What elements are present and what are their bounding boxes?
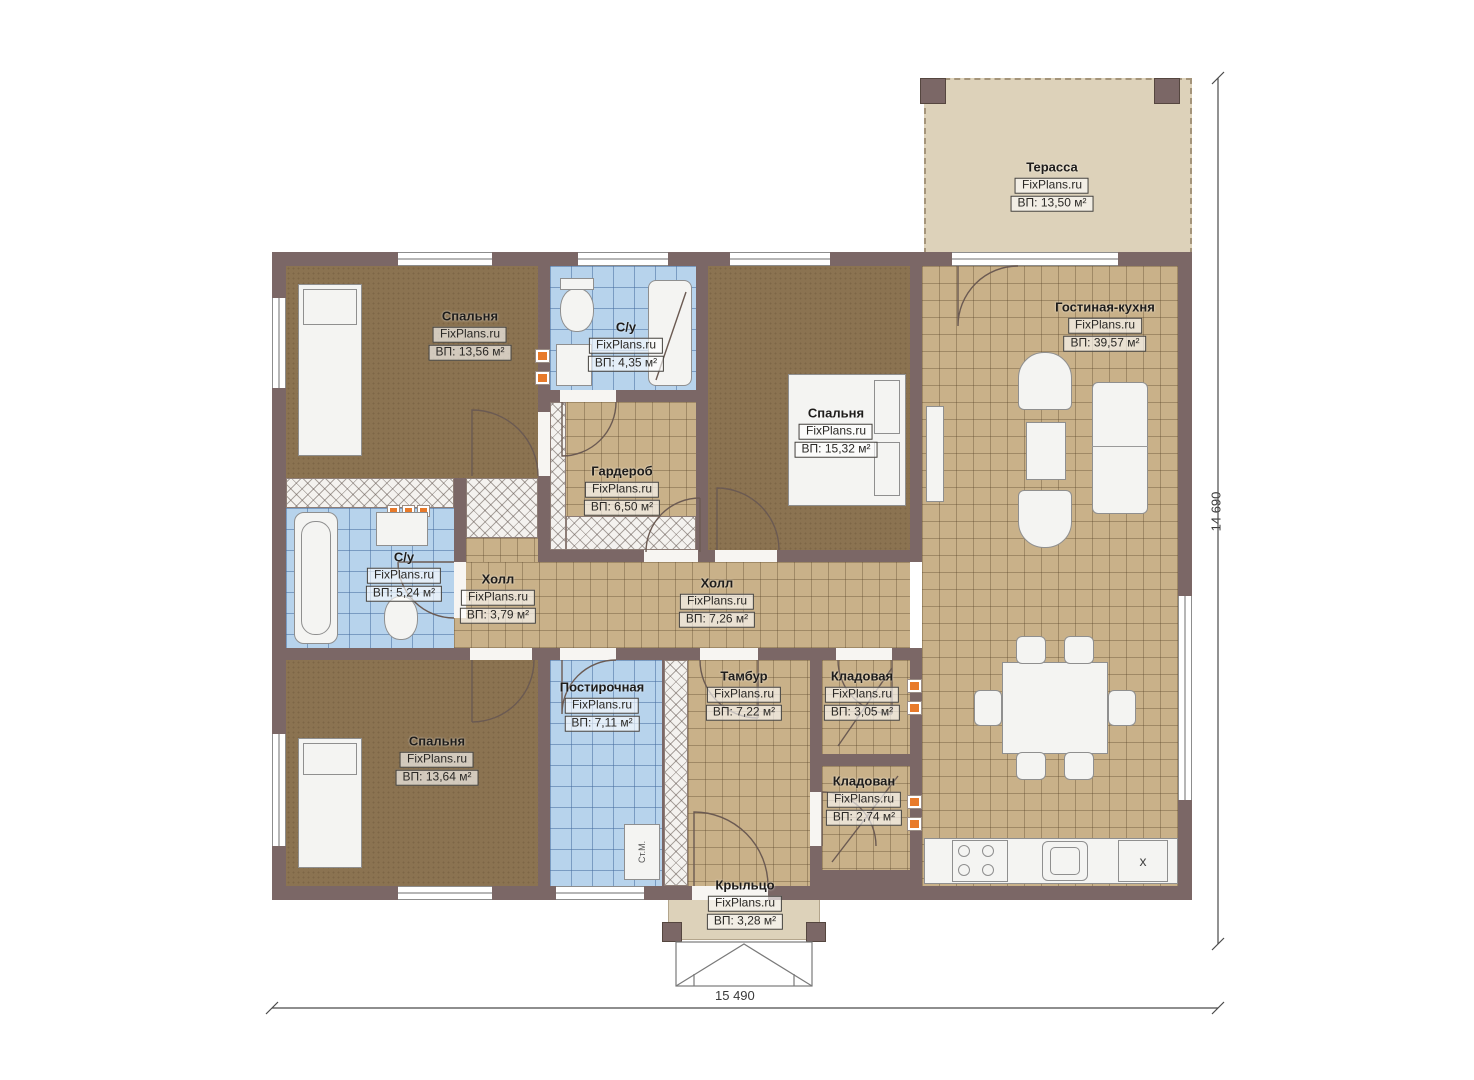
room-area: ВП: 7,22 м² [706,704,782,720]
window-bottom-bedroom-bl [398,886,492,900]
window-right-living [1178,596,1192,800]
terrace-post-left [920,78,946,104]
room-label-bath-left: С/у FixPlans.ru ВП: 5,24 м² [366,551,442,602]
room-name: Спальня [409,735,465,750]
dimension-bottom: 15 490 [715,988,755,1003]
burner-1 [958,845,970,857]
door-gap-bedroom-r [715,550,777,562]
window-top-bedroom-tl [398,252,492,266]
room-label-hall-small: Холл FixPlans.ru ВП: 3,79 м² [460,573,536,624]
room-name: Спальня [442,310,498,325]
dimension-right: 14 690 [1208,492,1223,532]
pillow-bedroom-r [874,380,900,434]
armchair-top [1018,352,1072,410]
watermark: FixPlans.ru [589,338,663,354]
wall-storage-bottom [822,870,910,886]
room-name: Холл [482,573,515,588]
room-label-vestibule: Тамбур FixPlans.ru ВП: 7,22 м² [706,670,782,721]
room-label-terrace: Терасса FixPlans.ru ВП: 13,50 м² [1011,161,1094,212]
room-area: ВП: 2,74 м² [826,809,902,825]
watermark: FixPlans.ru [433,327,507,343]
room-area: ВП: 13,56 м² [429,344,512,360]
watermark: FixPlans.ru [799,424,873,440]
burner-2 [982,845,994,857]
watermark: FixPlans.ru [585,482,659,498]
door-gap-wardrobe [644,550,698,562]
watermark: FixPlans.ru [1068,318,1142,334]
window-bottom-laundry [556,886,644,900]
room-name: Терасса [1026,161,1078,176]
watermark: FixPlans.ru [565,698,639,714]
room-label-wardrobe: Гардероб FixPlans.ru ВП: 6,50 м² [584,465,660,516]
room-label-storage-1: Кладовая FixPlans.ru ВП: 3,05 м² [824,670,900,721]
pillow-bedroom-tl [303,289,357,325]
watermark: FixPlans.ru [708,896,782,912]
tv-console [926,406,944,502]
sofa-arm-line [1092,446,1148,447]
closet-wardrobe-left [550,402,566,550]
room-name: Кладовая [831,670,893,685]
room-area: ВП: 13,50 м² [1011,195,1094,211]
room-area: ВП: 3,28 м² [707,913,783,929]
pillow-bedroom-bl [303,743,357,775]
room-label-bedroom-bl: Спальня FixPlans.ru ВП: 13,64 м² [396,735,479,786]
dining-chair-l [974,690,1002,726]
vent-3a [908,796,921,808]
watermark: FixPlans.ru [825,687,899,703]
bathtub-inner-bath-left [301,521,331,635]
room-area: ВП: 13,64 м² [396,769,479,785]
armchair-bottom [1018,490,1072,548]
dining-chair-t2 [1064,636,1094,664]
dining-chair-b1 [1016,752,1046,780]
room-name: Спальня [808,407,864,422]
room-area: ВП: 6,50 м² [584,499,660,515]
room-area: ВП: 3,79 м² [460,607,536,623]
room-area: ВП: 7,11 м² [564,715,639,731]
room-area: ВП: 39,57 м² [1064,335,1147,351]
wall-f [810,660,822,886]
pillow-bedroom-r2 [874,442,900,496]
room-name: Холл [701,577,734,592]
room-label-bedroom-r: Спальня FixPlans.ru ВП: 15,32 м² [795,407,878,458]
room-area: ВП: 3,05 м² [824,704,900,720]
dining-chair-b2 [1064,752,1094,780]
burner-3 [958,864,970,876]
door-gap-storage-2 [810,792,822,846]
vent-1a [536,350,549,362]
room-name: С/у [394,551,414,566]
coffee-table [1026,422,1066,480]
sofa [1092,382,1148,514]
room-name: С/у [616,321,636,336]
wall-h1 [910,266,922,562]
closet-strip-top-left [286,478,454,508]
room-label-laundry: Постирочная FixPlans.ru ВП: 7,11 м² [560,681,644,732]
watermark: FixPlans.ru [400,752,474,768]
watermark: FixPlans.ru [461,590,535,606]
porch-post-br [806,922,826,942]
closet-laundry-column [664,660,688,886]
sink-bath-left [376,512,428,546]
room-label-bedroom-tl: Спальня FixPlans.ru ВП: 13,56 м² [429,310,512,361]
room-name: Кладован [833,775,896,790]
watermark: FixPlans.ru [1015,178,1089,194]
door-gap-laundry [560,648,616,660]
closet-wardrobe-bottom [566,516,696,550]
wall-c [696,266,708,562]
vent-1b [536,372,549,384]
washing-machine: Ст.М. [624,824,660,880]
room-name: Тамбур [720,670,767,685]
watermark: FixPlans.ru [707,687,781,703]
dining-chair-t1 [1016,636,1046,664]
wall-b2 [538,648,550,886]
watermark: FixPlans.ru [680,594,754,610]
room-label-bath-top: С/у FixPlans.ru ВП: 4,35 м² [588,321,664,372]
room-label-storage-2: Кладован FixPlans.ru ВП: 2,74 м² [826,775,902,826]
room-name: Крыльцо [715,879,774,894]
dining-chair-r [1108,690,1136,726]
window-top-bath [578,252,668,266]
room-label-porch: Крыльцо FixPlans.ru ВП: 3,28 м² [707,879,783,930]
watermark: FixPlans.ru [367,568,441,584]
room-area: ВП: 7,26 м² [679,611,755,627]
room-area: ВП: 15,32 м² [795,441,878,457]
vent-3b [908,818,921,830]
toilet-tank-bath-top [560,278,594,290]
door-gap-bath-top [560,390,616,402]
wall-outer-right [1178,252,1192,900]
window-left-bedroom-tl [272,298,286,388]
door-gap-vestibule [700,648,758,660]
sink-bath-top [556,344,592,386]
window-left-bedroom-bl [272,734,286,846]
window-top-bedroom-r [730,252,830,266]
porch-post-bl [662,922,682,942]
room-area: ВП: 4,35 м² [588,355,664,371]
kitchen-sink-inner [1050,847,1080,875]
door-gap-storage-1 [836,648,892,660]
room-label-hall-main: Холл FixPlans.ru ВП: 7,26 м² [679,577,755,628]
closet-hall-small [466,478,538,538]
burner-4 [982,864,994,876]
floor-plan-page: Ст.М. x [0,0,1474,1080]
room-name: Гостиная-кухня [1055,301,1155,316]
vent-2a [908,680,921,692]
watermark: FixPlans.ru [827,792,901,808]
wall-g [822,754,910,766]
room-label-living-kitchen: Гостиная-кухня FixPlans.ru ВП: 39,57 м² [1055,301,1155,352]
fridge-cell: x [1118,840,1168,882]
terrace-slider-door [952,252,1118,266]
door-gap-bedroom-bl [470,648,532,660]
toilet-bath-left [384,596,418,640]
room-name: Постирочная [560,681,644,696]
room-name: Гардероб [591,465,652,480]
terrace-post-right [1154,78,1180,104]
door-gap-bedroom-tl [538,412,550,476]
room-area: ВП: 5,24 м² [366,585,442,601]
vent-2b [908,702,921,714]
dining-table [1002,662,1108,754]
